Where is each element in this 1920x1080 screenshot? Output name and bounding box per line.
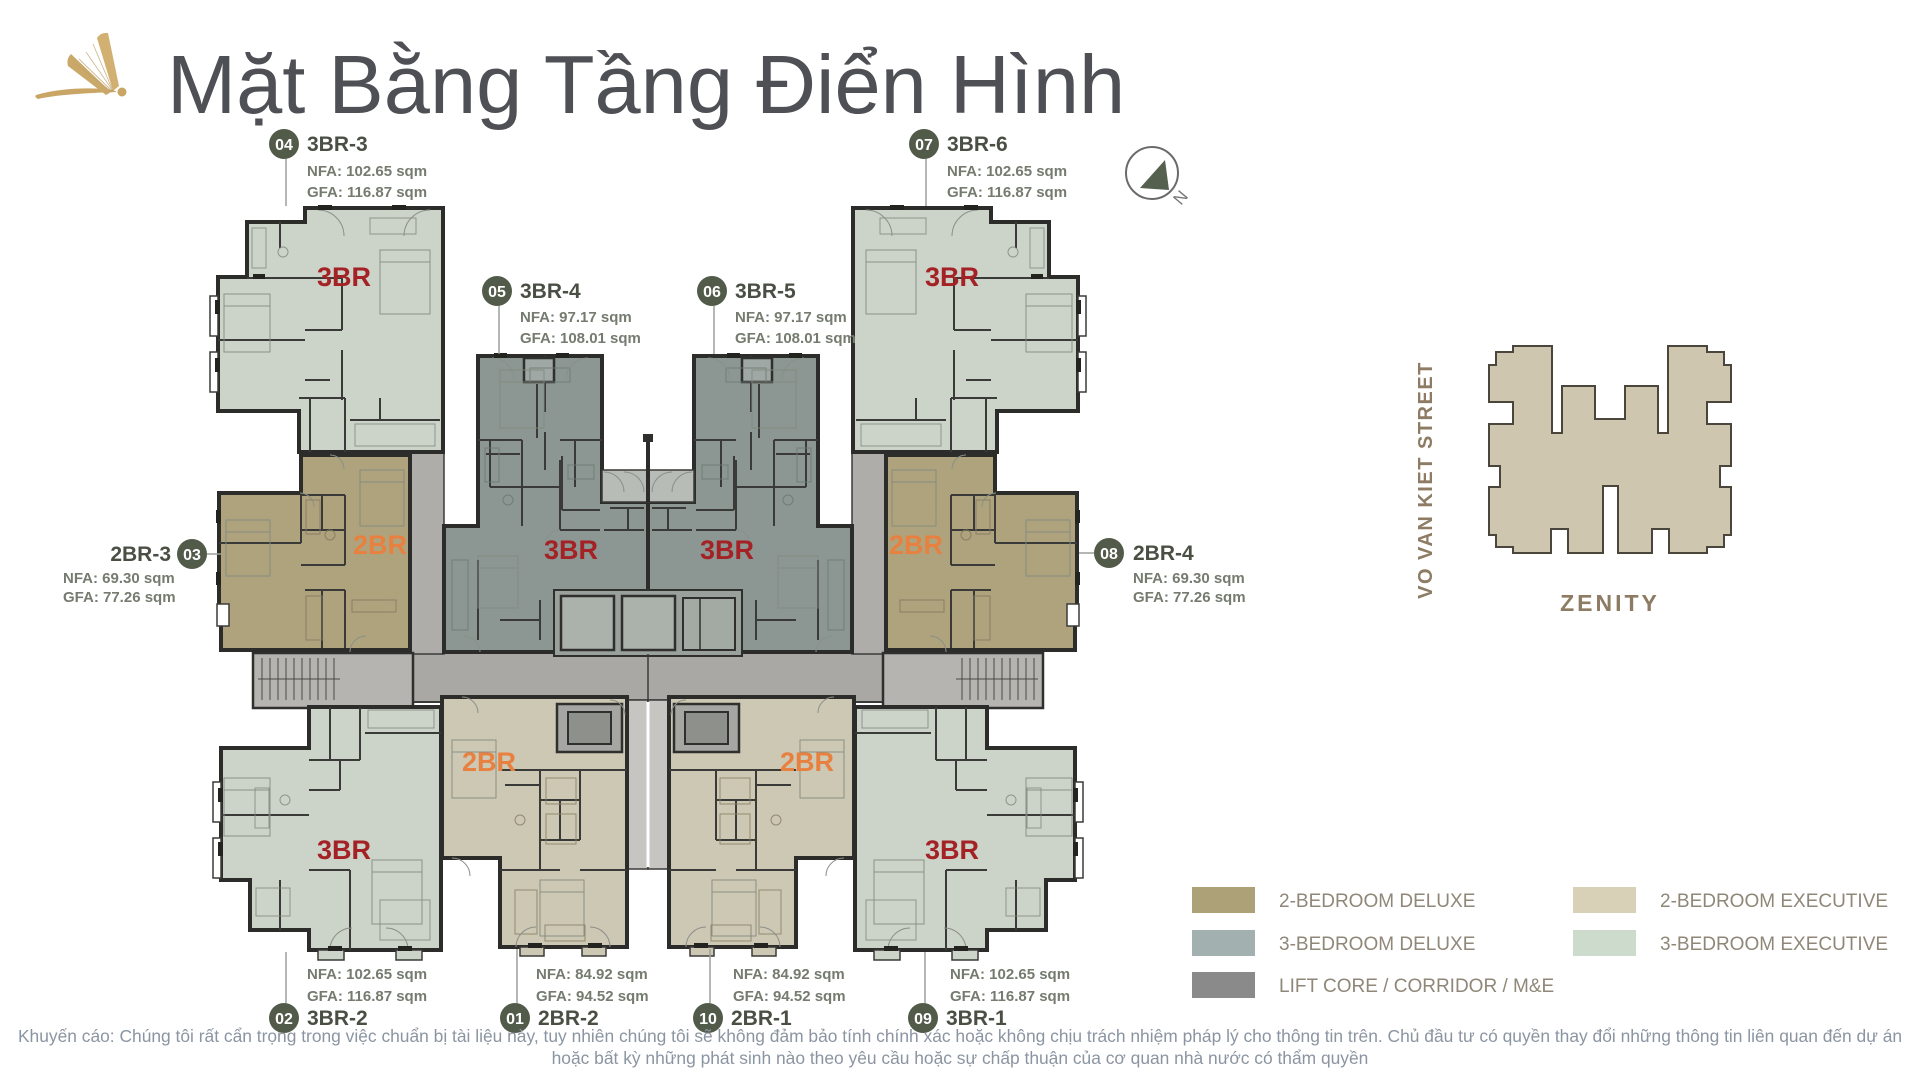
svg-text:05: 05: [488, 284, 506, 301]
svg-text:3BR: 3BR: [544, 535, 598, 565]
svg-text:NFA: 102.65 sqm: NFA: 102.65 sqm: [307, 163, 427, 180]
svg-text:GFA: 116.87 sqm: GFA: 116.87 sqm: [307, 184, 427, 201]
svg-text:2BR: 2BR: [780, 747, 834, 777]
svg-text:GFA: 94.52 sqm: GFA: 94.52 sqm: [733, 988, 846, 1005]
svg-text:NFA: 102.65 sqm: NFA: 102.65 sqm: [307, 966, 427, 983]
svg-text:NFA: 102.65 sqm: NFA: 102.65 sqm: [950, 966, 1070, 983]
svg-text:NFA: 97.17 sqm: NFA: 97.17 sqm: [735, 309, 847, 326]
svg-text:Mặt Bằng Tầng Điển Hình: Mặt Bằng Tầng Điển Hình: [167, 38, 1125, 131]
svg-text:3BR: 3BR: [925, 835, 979, 865]
svg-text:3BR-6: 3BR-6: [947, 133, 1008, 156]
svg-text:06: 06: [703, 284, 721, 301]
svg-text:NFA: 84.92 sqm: NFA: 84.92 sqm: [536, 966, 648, 983]
svg-text:2BR: 2BR: [462, 747, 516, 777]
svg-text:2-BEDROOM EXECUTIVE: 2-BEDROOM EXECUTIVE: [1660, 891, 1888, 912]
svg-text:GFA: 116.87 sqm: GFA: 116.87 sqm: [307, 988, 427, 1005]
svg-text:3BR: 3BR: [317, 262, 371, 292]
svg-text:3-BEDROOM DELUXE: 3-BEDROOM DELUXE: [1279, 934, 1475, 955]
svg-text:NFA: 69.30 sqm: NFA: 69.30 sqm: [1133, 570, 1245, 587]
svg-text:2BR-3: 2BR-3: [110, 543, 171, 566]
svg-text:NFA: 102.65 sqm: NFA: 102.65 sqm: [947, 163, 1067, 180]
svg-text:N: N: [1170, 187, 1192, 209]
svg-text:NFA: 97.17 sqm: NFA: 97.17 sqm: [520, 309, 632, 326]
svg-text:3BR: 3BR: [925, 262, 979, 292]
svg-text:2-BEDROOM DELUXE: 2-BEDROOM DELUXE: [1279, 891, 1475, 912]
svg-text:2BR: 2BR: [889, 530, 943, 560]
svg-text:3BR-5: 3BR-5: [735, 280, 796, 303]
svg-text:GFA: 94.52 sqm: GFA: 94.52 sqm: [536, 988, 649, 1005]
svg-text:NFA: 69.30 sqm: NFA: 69.30 sqm: [63, 570, 175, 587]
svg-text:ZENITY: ZENITY: [1560, 590, 1660, 616]
svg-text:04: 04: [275, 137, 293, 154]
svg-text:03: 03: [183, 547, 201, 564]
svg-text:hoặc bất kỳ những phát sinh nà: hoặc bất kỳ những phát sinh nào theo yêu…: [552, 1048, 1369, 1068]
svg-text:3BR: 3BR: [700, 535, 754, 565]
svg-text:GFA: 108.01 sqm: GFA: 108.01 sqm: [735, 330, 856, 347]
svg-text:GFA: 116.87 sqm: GFA: 116.87 sqm: [947, 184, 1067, 201]
svg-text:2BR-4: 2BR-4: [1133, 542, 1194, 565]
svg-text:VO VAN KIET STREET: VO VAN KIET STREET: [1415, 361, 1437, 599]
svg-text:NFA: 84.92 sqm: NFA: 84.92 sqm: [733, 966, 845, 983]
svg-text:3BR-4: 3BR-4: [520, 280, 581, 303]
svg-text:07: 07: [915, 137, 933, 154]
svg-text:3-BEDROOM EXECUTIVE: 3-BEDROOM EXECUTIVE: [1660, 934, 1888, 955]
svg-text:Khuyến cáo: Chúng tôi rất cẩn: Khuyến cáo: Chúng tôi rất cẩn trọng tron…: [18, 1026, 1902, 1046]
svg-text:2BR: 2BR: [353, 530, 407, 560]
svg-text:3BR-3: 3BR-3: [307, 133, 368, 156]
svg-text:08: 08: [1100, 546, 1118, 563]
svg-text:GFA: 77.26 sqm: GFA: 77.26 sqm: [1133, 589, 1246, 606]
svg-text:LIFT CORE / CORRIDOR / M&E: LIFT CORE / CORRIDOR / M&E: [1279, 976, 1554, 997]
svg-text:GFA: 116.87 sqm: GFA: 116.87 sqm: [950, 988, 1070, 1005]
svg-text:GFA: 77.26 sqm: GFA: 77.26 sqm: [63, 589, 176, 606]
svg-text:GFA: 108.01 sqm: GFA: 108.01 sqm: [520, 330, 641, 347]
svg-text:3BR: 3BR: [317, 835, 371, 865]
